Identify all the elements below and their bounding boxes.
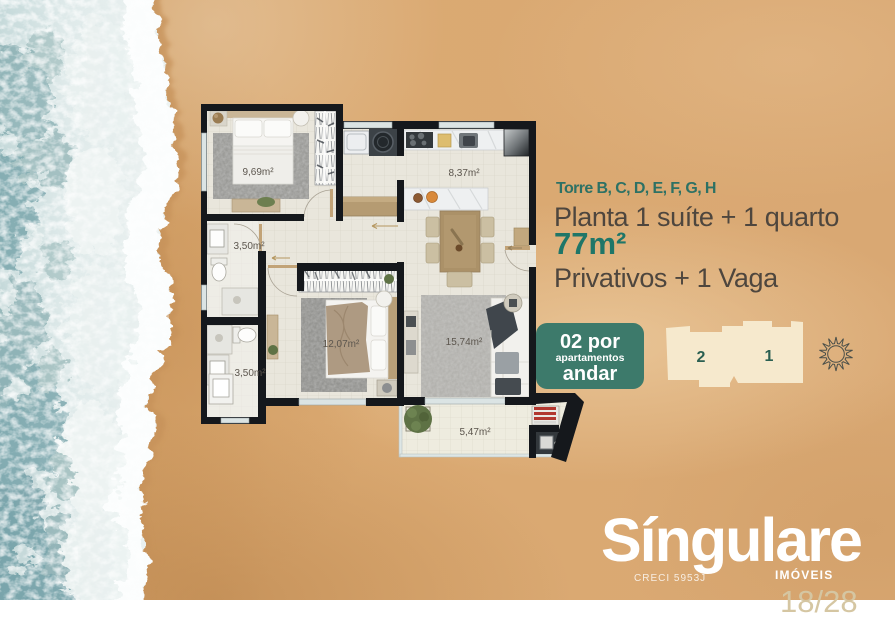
svg-text:5,47m²: 5,47m² [459,427,491,438]
svg-text:3,50m²: 3,50m² [234,368,266,379]
svg-text:1: 1 [765,348,774,365]
svg-text:2: 2 [697,349,706,366]
svg-text:12,07m²: 12,07m² [323,339,360,350]
svg-text:9,69m²: 9,69m² [242,167,274,178]
svg-text:15,74m²: 15,74m² [446,337,483,348]
svg-text:3,50m²: 3,50m² [233,241,265,252]
svg-text:8,37m²: 8,37m² [448,168,480,179]
